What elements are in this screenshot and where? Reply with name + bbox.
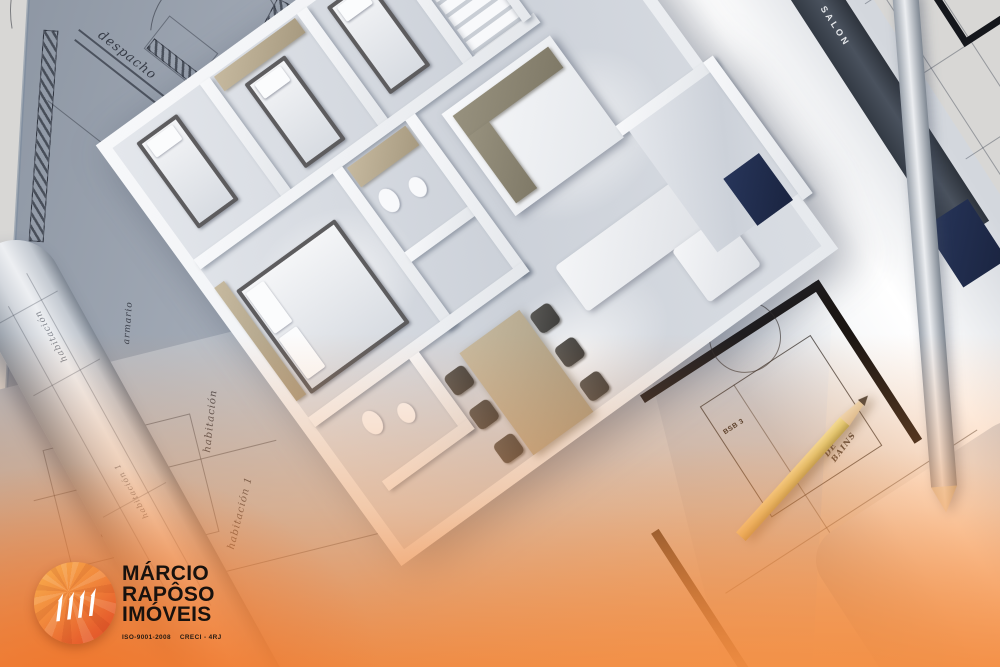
logo-line-1: MÁRCIO: [122, 564, 252, 585]
cad-wall: [961, 0, 1000, 47]
tube-sketch-line: [33, 359, 100, 397]
logo-text: MÁRCIO RAPÔSO IMÓVEIS ISO-9001-2008 CREC…: [122, 564, 252, 648]
company-logo: MÁRCIO RAPÔSO IMÓVEIS ISO-9001-2008 CREC…: [30, 554, 260, 654]
logo-m-icon: [50, 580, 102, 626]
marketing-image: despacho entrada cuarto habitación 1 hab…: [0, 0, 1000, 667]
label-salon: SALON: [819, 4, 853, 48]
logo-circle: [34, 562, 116, 644]
logo-line-2: RAPÔSO: [122, 585, 252, 606]
logo-cert-row: ISO-9001-2008 CRECI - 4RJ: [122, 628, 252, 649]
cad-line: [865, 0, 1000, 4]
tube-label-habitacion-1: habitación 1: [112, 462, 150, 521]
logo-line-3: IMÓVEIS: [122, 605, 252, 626]
logo-cert-creci: CRECI - 4RJ: [180, 628, 222, 649]
logo-cert-iso: ISO-9001-2008: [122, 628, 171, 649]
